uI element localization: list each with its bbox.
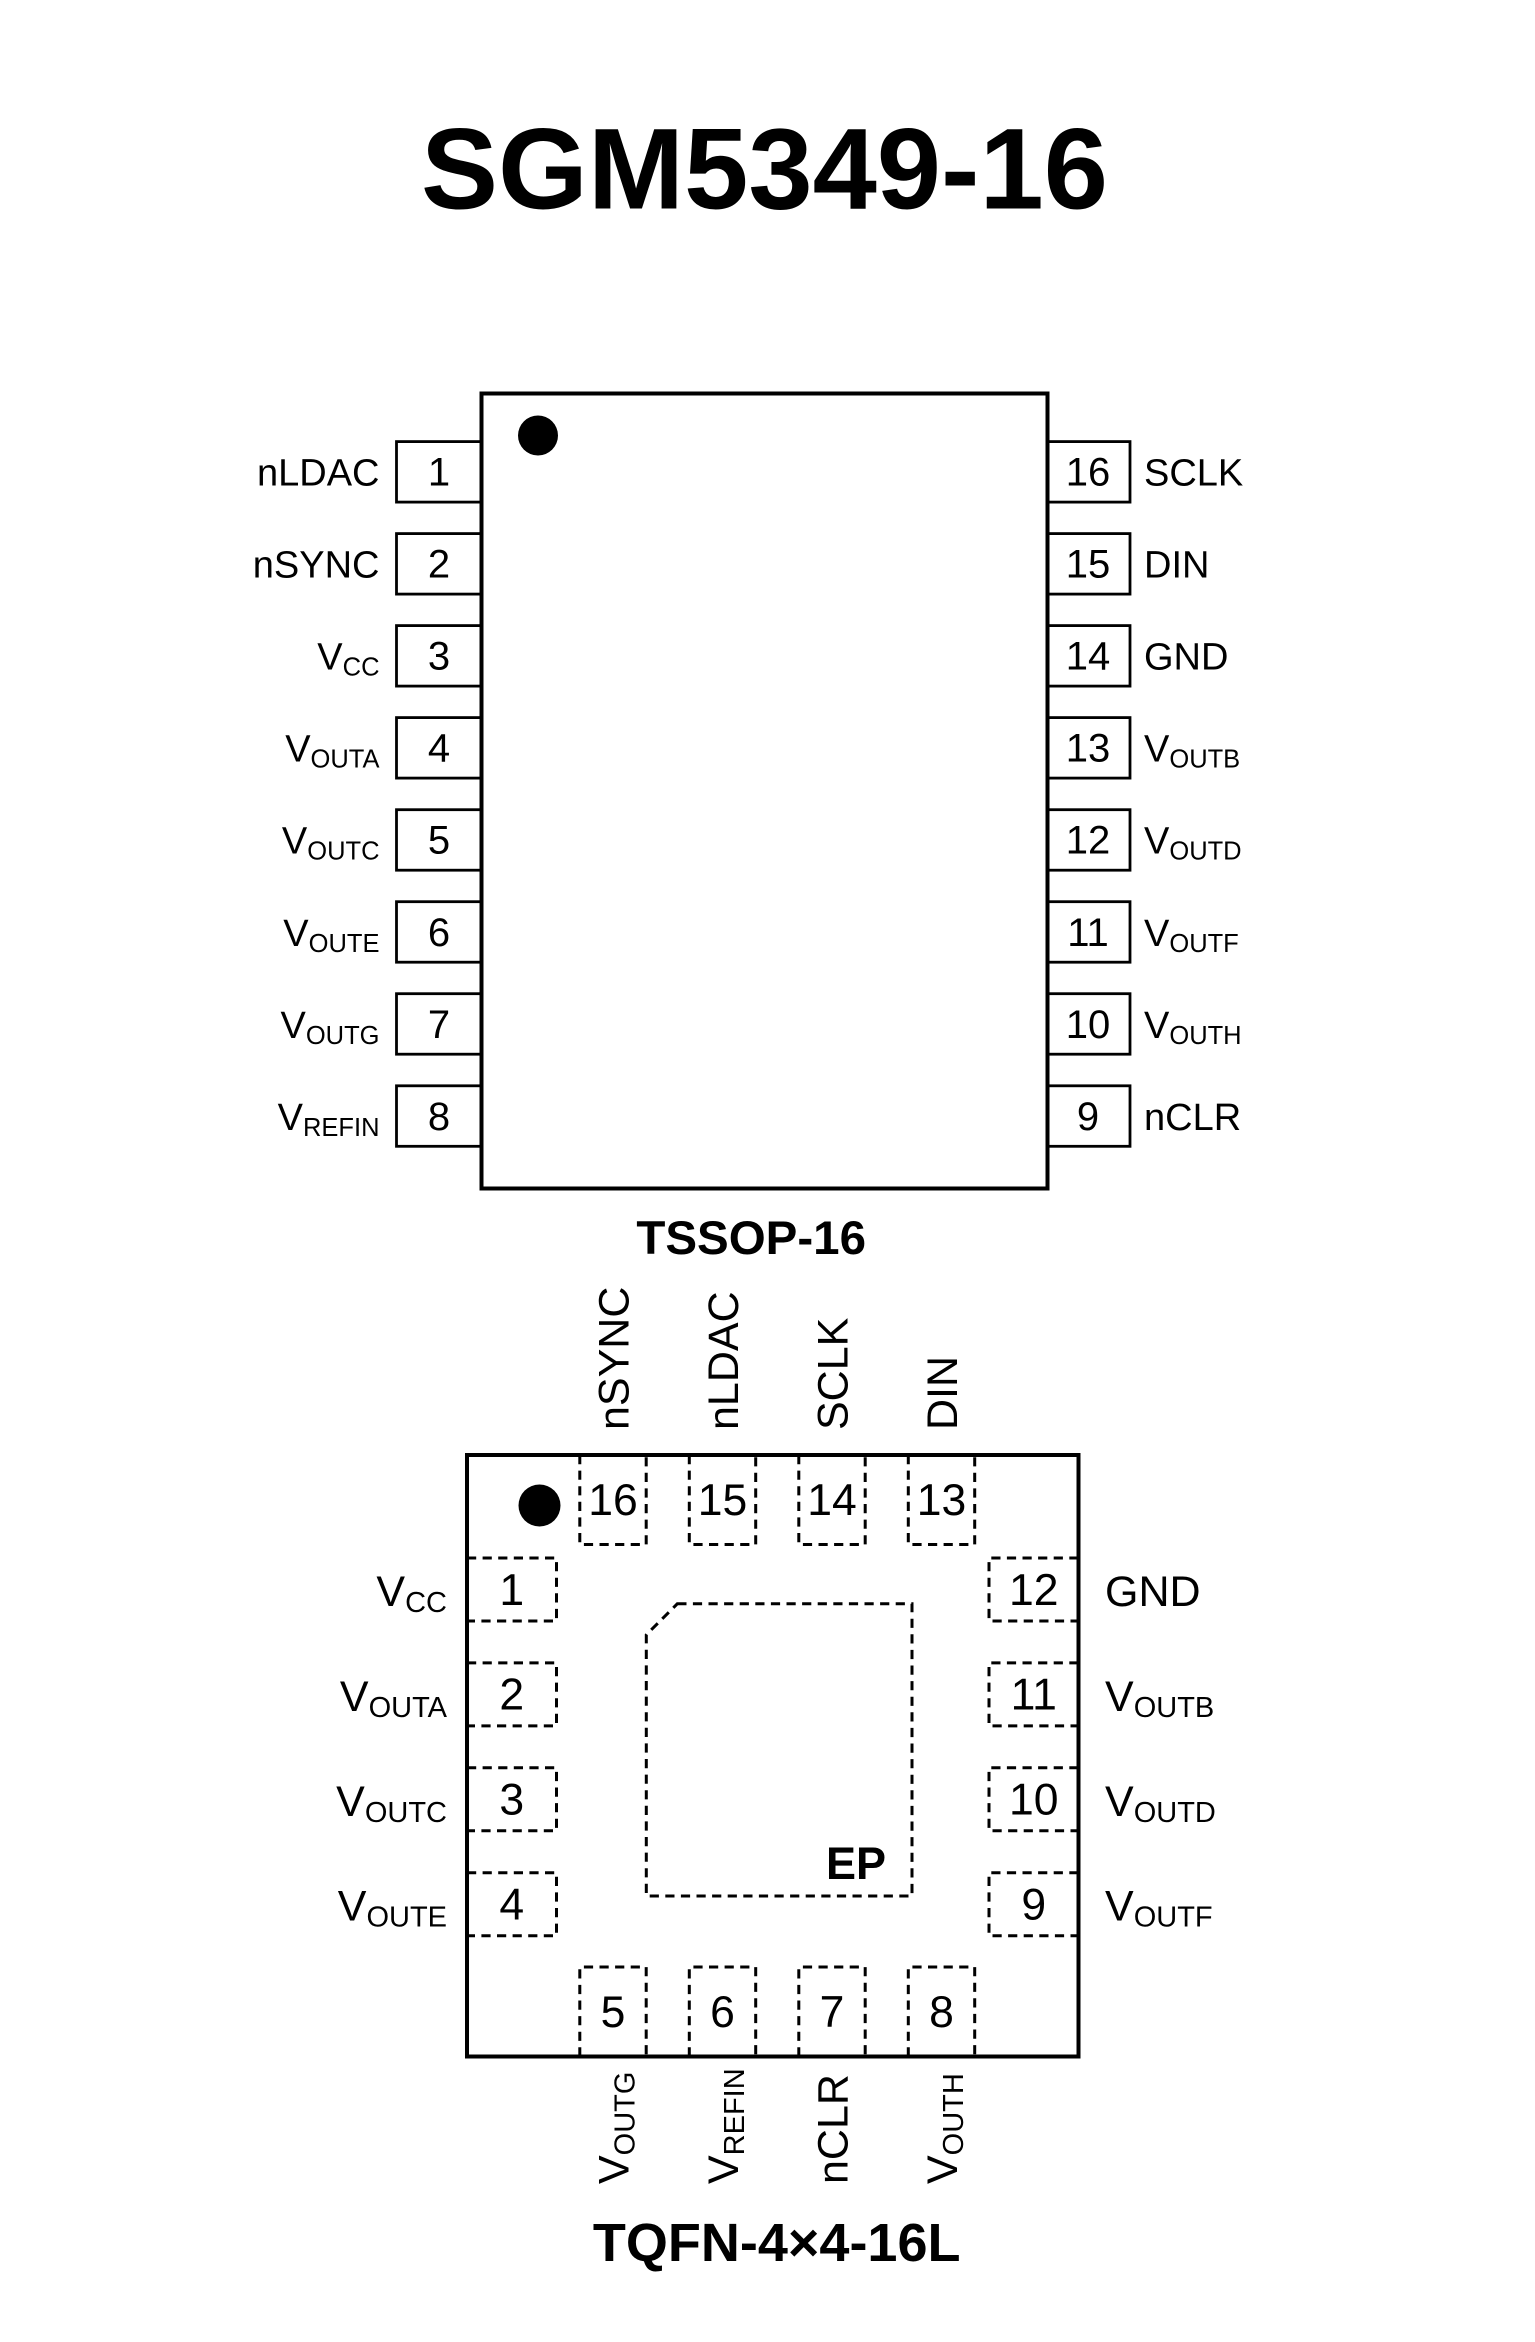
svg-text:3: 3 xyxy=(428,635,450,679)
svg-text:8: 8 xyxy=(428,1095,450,1139)
svg-text:13: 13 xyxy=(1066,727,1111,771)
svg-text:4: 4 xyxy=(428,727,450,771)
svg-text:6: 6 xyxy=(428,911,450,955)
svg-text:16: 16 xyxy=(588,1476,638,1525)
svg-text:14: 14 xyxy=(807,1476,857,1525)
svg-text:1: 1 xyxy=(428,451,450,495)
svg-text:nCLR: nCLR xyxy=(810,2074,858,2184)
svg-text:EP: EP xyxy=(826,1838,886,1889)
svg-text:nSYNC: nSYNC xyxy=(591,1287,639,1430)
svg-text:5: 5 xyxy=(601,1988,626,2037)
svg-text:nCLR: nCLR xyxy=(1144,1097,1241,1139)
svg-text:GND: GND xyxy=(1144,637,1228,679)
svg-text:16: 16 xyxy=(1066,451,1111,495)
svg-text:GND: GND xyxy=(1105,1568,1201,1616)
svg-text:TQFN-4×4-16L: TQFN-4×4-16L xyxy=(593,2213,961,2273)
svg-text:7: 7 xyxy=(820,1988,845,2037)
svg-text:15: 15 xyxy=(698,1476,748,1525)
svg-text:6: 6 xyxy=(710,1988,735,2037)
svg-text:9: 9 xyxy=(1077,1095,1099,1139)
svg-text:SCLK: SCLK xyxy=(1144,453,1243,495)
svg-text:9: 9 xyxy=(1021,1881,1046,1930)
svg-text:5: 5 xyxy=(428,819,450,863)
svg-text:12: 12 xyxy=(1009,1566,1059,1615)
svg-text:1: 1 xyxy=(499,1566,524,1615)
svg-text:4: 4 xyxy=(499,1881,524,1930)
svg-text:14: 14 xyxy=(1066,635,1111,679)
svg-text:nLDAC: nLDAC xyxy=(700,1291,748,1430)
svg-text:nSYNC: nSYNC xyxy=(253,545,380,587)
svg-text:DIN: DIN xyxy=(1144,545,1209,587)
svg-text:11: 11 xyxy=(1011,1671,1057,1720)
svg-text:10: 10 xyxy=(1066,1003,1111,1047)
svg-text:2: 2 xyxy=(428,543,450,587)
svg-text:SCLK: SCLK xyxy=(810,1317,858,1430)
svg-text:8: 8 xyxy=(929,1988,954,2037)
svg-text:SGM5349-16: SGM5349-16 xyxy=(421,105,1108,234)
svg-text:7: 7 xyxy=(428,1003,450,1047)
svg-text:13: 13 xyxy=(917,1476,967,1525)
svg-text:15: 15 xyxy=(1066,543,1111,587)
svg-text:3: 3 xyxy=(499,1776,524,1825)
svg-text:TSSOP-16: TSSOP-16 xyxy=(636,1212,866,1265)
svg-text:nLDAC: nLDAC xyxy=(257,453,380,495)
svg-text:DIN: DIN xyxy=(919,1356,967,1430)
svg-text:11: 11 xyxy=(1067,911,1109,955)
svg-text:2: 2 xyxy=(499,1671,524,1720)
svg-text:10: 10 xyxy=(1009,1776,1059,1825)
svg-text:12: 12 xyxy=(1066,819,1111,863)
